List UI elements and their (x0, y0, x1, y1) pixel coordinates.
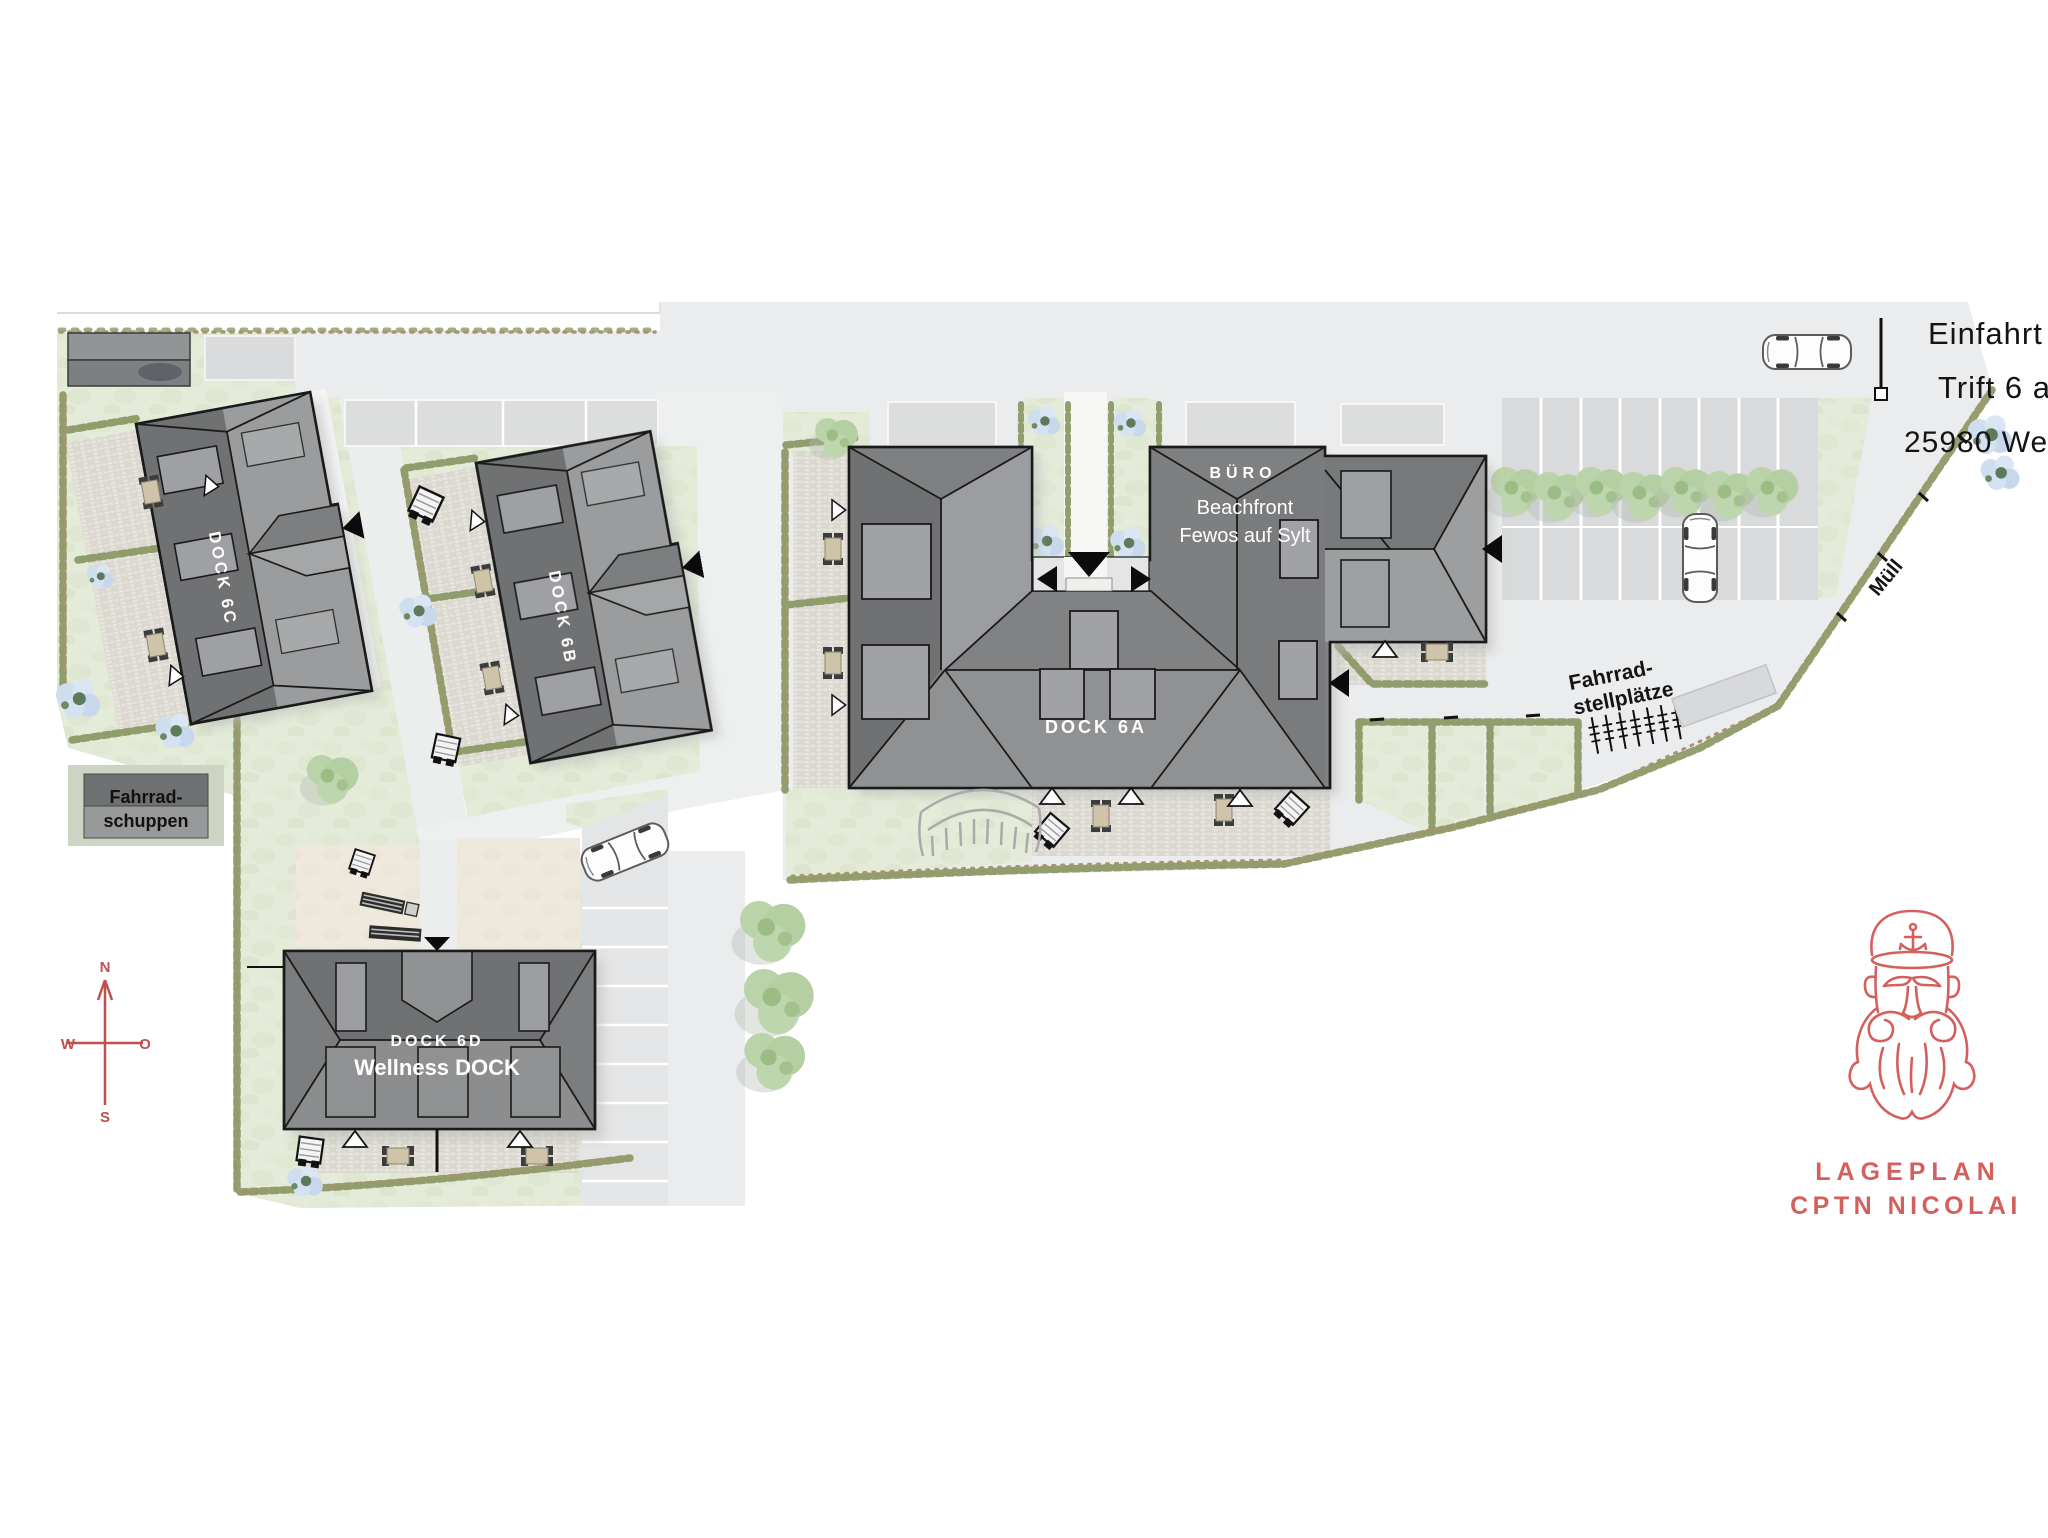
svg-text:Einfahrt übe: Einfahrt übe (1928, 316, 2048, 351)
svg-text:O: O (139, 1036, 151, 1053)
svg-text:S: S (100, 1109, 110, 1126)
svg-text:Fewos auf Sylt: Fewos auf Sylt (1179, 525, 1311, 547)
svg-text:BÜRO: BÜRO (1209, 463, 1276, 482)
svg-text:N: N (100, 959, 111, 976)
svg-text:Wellness DOCK: Wellness DOCK (354, 1055, 520, 1080)
svg-text:Trift 6 a-c: Trift 6 a-c (1938, 370, 2048, 405)
svg-text:Fahrrad-: Fahrrad- (109, 787, 182, 807)
svg-text:CPTN NICOLAI: CPTN NICOLAI (1790, 1192, 2022, 1220)
svg-text:schuppen: schuppen (103, 811, 188, 831)
svg-text:Beachfront: Beachfront (1197, 497, 1294, 519)
svg-text:LAGEPLAN: LAGEPLAN (1815, 1158, 2001, 1186)
svg-text:DOCK 6A: DOCK 6A (1045, 717, 1147, 737)
svg-text:25980 Wester: 25980 Wester (1904, 426, 2048, 459)
svg-text:DOCK 6D: DOCK 6D (390, 1033, 483, 1050)
svg-text:W: W (61, 1036, 76, 1053)
